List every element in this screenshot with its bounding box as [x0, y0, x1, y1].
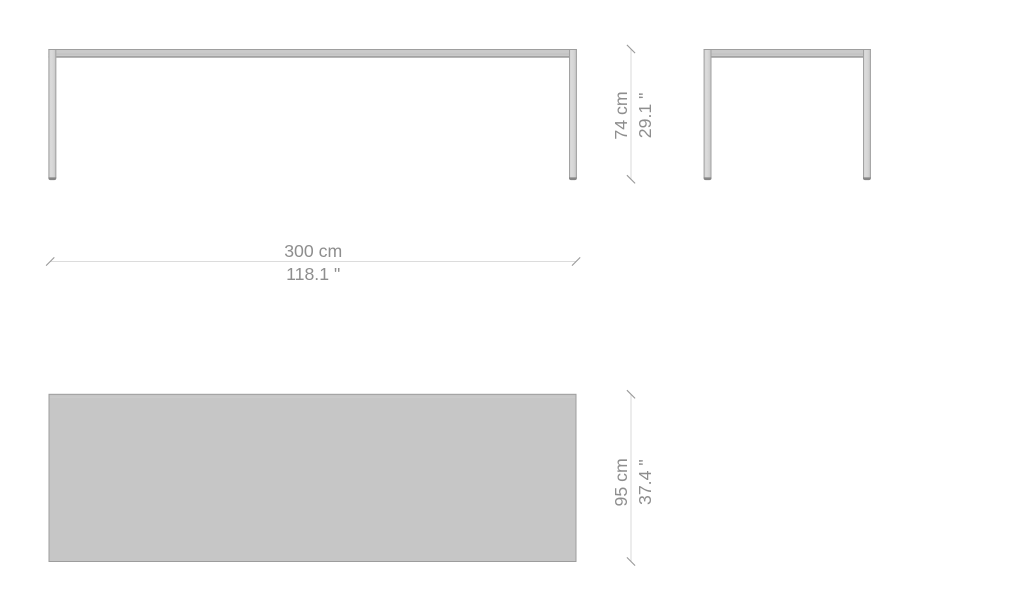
svg-text:95 cm: 95 cm: [611, 458, 631, 506]
svg-text:74 cm: 74 cm: [611, 91, 631, 139]
svg-text:37.4 ": 37.4 ": [635, 459, 655, 505]
svg-text:300 cm: 300 cm: [284, 241, 342, 261]
svg-text:29.1 ": 29.1 ": [635, 93, 655, 139]
svg-text:118.1 ": 118.1 ": [286, 264, 340, 284]
